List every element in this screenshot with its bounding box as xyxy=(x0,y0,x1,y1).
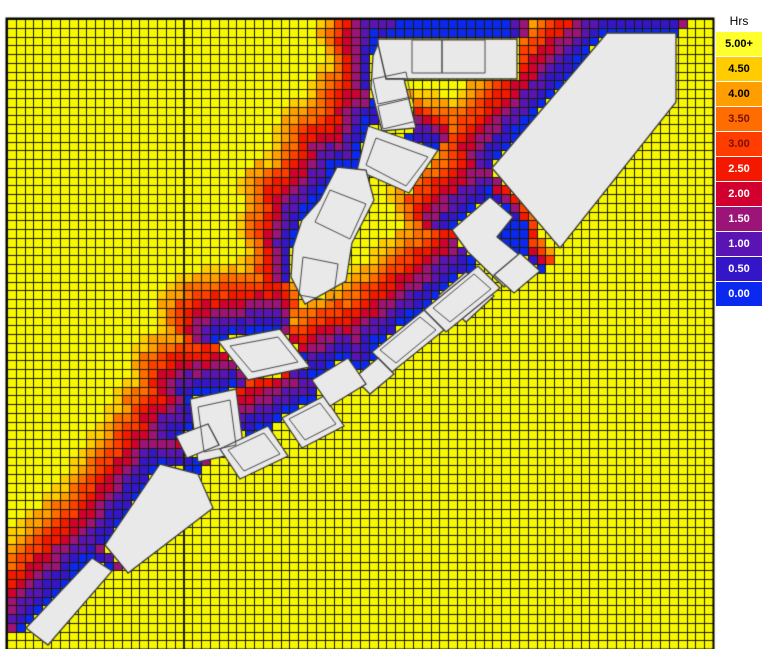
legend-entry-label: 1.00 xyxy=(728,238,749,250)
legend-entry-label: 4.00 xyxy=(728,88,749,100)
legend-entry-3.50: 3.50 xyxy=(716,107,762,131)
legend-entry-3.00: 3.00 xyxy=(716,132,762,156)
screenshot-root: Hrs 5.00+4.504.003.503.002.502.001.501.0… xyxy=(0,0,773,649)
legend-title: Hrs xyxy=(716,14,762,28)
legend-entries: 5.00+4.504.003.503.002.502.001.501.000.5… xyxy=(716,32,768,307)
legend-entry-2.00: 2.00 xyxy=(716,182,762,206)
legend-entry-label: 3.50 xyxy=(728,113,749,125)
legend-entry-1.00: 1.00 xyxy=(716,232,762,256)
legend-entry-label: 5.00+ xyxy=(725,38,753,50)
legend-entry-0.00: 0.00 xyxy=(716,282,762,306)
legend-entry-1.50: 1.50 xyxy=(716,207,762,231)
legend-entry-2.50: 2.50 xyxy=(716,157,762,181)
legend-entry-label: 2.50 xyxy=(728,163,749,175)
legend-entry-4.50: 4.50 xyxy=(716,57,762,81)
legend-entry-label: 4.50 xyxy=(728,63,749,75)
legend-entry-label: 3.00 xyxy=(728,138,749,150)
legend-entry-label: 1.50 xyxy=(728,213,749,225)
sun-hours-heatmap xyxy=(0,0,773,649)
legend-entry-label: 0.00 xyxy=(728,288,749,300)
legend-entry-5.00+: 5.00+ xyxy=(716,32,762,56)
legend: Hrs 5.00+4.504.003.503.002.502.001.501.0… xyxy=(716,14,768,307)
legend-entry-0.50: 0.50 xyxy=(716,257,762,281)
legend-entry-4.00: 4.00 xyxy=(716,82,762,106)
legend-entry-label: 0.50 xyxy=(728,263,749,275)
legend-entry-label: 2.00 xyxy=(728,188,749,200)
